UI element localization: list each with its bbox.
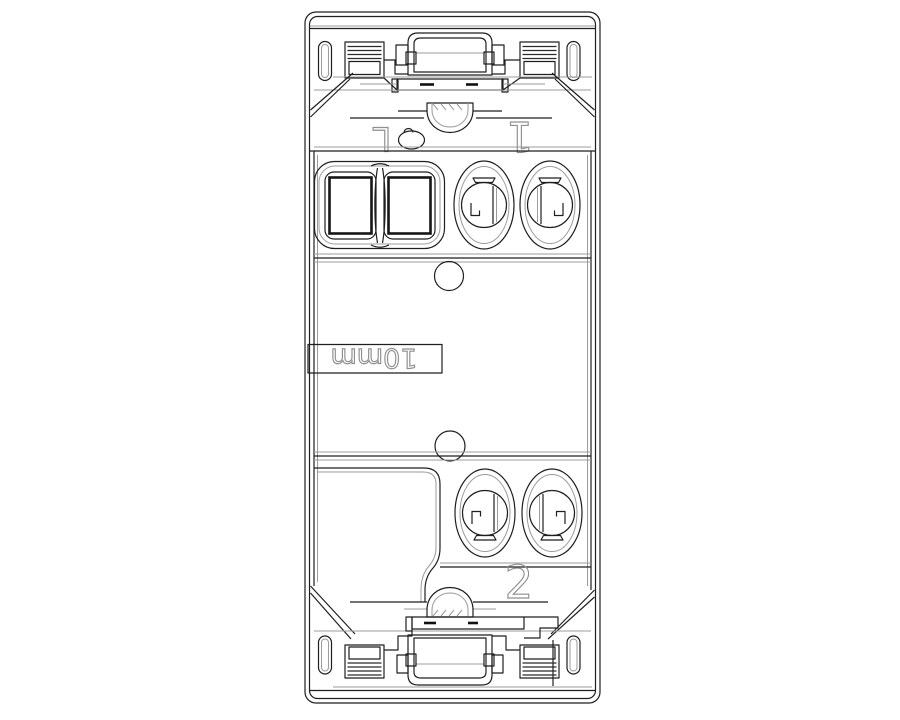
slot-inner	[322, 639, 329, 671]
pole-label-row-top: L 1	[310, 112, 596, 161]
edge-line	[457, 610, 462, 616]
technical-drawing-canvas: L 1	[0, 0, 900, 720]
clip-outline	[520, 42, 559, 78]
pull-knob-top	[427, 103, 473, 133]
clip-outline	[345, 42, 384, 78]
port-outline	[454, 161, 514, 249]
slot-outline	[319, 42, 332, 81]
guide-hole-top	[435, 262, 464, 291]
square-port-block	[315, 162, 445, 249]
contact-notch	[557, 512, 566, 525]
chamfer-line	[552, 73, 595, 110]
clip-inner	[524, 647, 555, 659]
port-opening	[463, 491, 508, 536]
chamfer-line	[311, 593, 352, 639]
cavity-wall-outer	[314, 468, 440, 602]
round-port-3	[455, 469, 515, 557]
knob-inner	[432, 103, 468, 127]
port-outline	[455, 469, 515, 557]
edge-line	[433, 610, 438, 616]
oval-outline	[399, 131, 425, 149]
slot-outline	[567, 42, 580, 81]
lower-cavity	[314, 468, 440, 602]
square-port-2-opening	[389, 178, 431, 234]
edge-line	[457, 104, 462, 110]
gauge-text: 10mm	[331, 342, 418, 373]
mid-body: 10mm	[308, 262, 591, 462]
square-port-1	[325, 172, 376, 239]
slot-outline	[567, 636, 580, 674]
tab-inner	[414, 38, 486, 72]
port-opening	[530, 491, 575, 536]
contact-notch	[472, 512, 481, 525]
pole-l-label: L	[372, 120, 391, 159]
edge-line	[449, 610, 454, 616]
terminal-row-1	[314, 161, 591, 262]
top-latch-frame	[311, 60, 595, 118]
contact-notch	[471, 203, 480, 216]
slot-inner	[570, 45, 577, 78]
mounting-slot-bottom-right	[567, 636, 580, 674]
slot-inner	[322, 45, 329, 78]
block-outline	[315, 162, 445, 249]
chamfer-line	[311, 586, 356, 634]
divider-cap	[371, 245, 389, 247]
bar-endcap	[406, 617, 412, 631]
cavity-wall-inner	[318, 472, 436, 602]
clip-inner	[349, 647, 380, 659]
round-port-4	[522, 469, 582, 557]
port-outline	[522, 469, 582, 557]
tab-outline	[408, 33, 492, 75]
round-port-1	[454, 161, 514, 249]
chamfer-line	[311, 73, 354, 110]
edge-line	[441, 104, 446, 110]
strip-gauge-label: 10mm	[308, 342, 442, 373]
step-bracket	[492, 636, 520, 650]
din-clip-top	[311, 33, 595, 133]
square-port-1-opening	[330, 178, 372, 234]
round-port-2	[520, 161, 580, 249]
edge-line	[449, 104, 454, 110]
slot-outline	[319, 636, 332, 674]
chamfer-line	[548, 597, 595, 639]
slot-inner	[570, 639, 577, 671]
contact-notch	[555, 203, 564, 216]
edge-line	[433, 104, 438, 110]
tab-inner	[414, 638, 486, 678]
contact-tab	[474, 536, 496, 541]
clip-inner	[524, 62, 555, 75]
clip-outline	[345, 645, 384, 678]
wiring-device-line-drawing: L 1	[0, 0, 900, 720]
contact-tab	[541, 536, 563, 541]
mounting-slot-top-right	[567, 42, 580, 81]
contact-tab	[539, 178, 561, 183]
mounting-slot-bottom-left	[319, 636, 332, 674]
spring-clip-top-left	[345, 42, 384, 78]
latch-bar-top	[314, 77, 592, 92]
chamfer-line	[311, 79, 351, 117]
pole-1-label: 1	[507, 112, 534, 161]
spring-clip-bottom-left	[345, 645, 384, 678]
step-bracket	[492, 60, 520, 74]
spring-clip-top-right	[520, 42, 559, 78]
bottom-latch-frame	[311, 586, 595, 650]
edge-line	[441, 610, 446, 616]
contact-tab	[473, 178, 495, 183]
clip-inner	[349, 62, 380, 75]
square-port-2	[384, 172, 435, 239]
port-opening	[528, 183, 573, 228]
mounting-slot-top-left	[319, 42, 332, 81]
latch-bar-bottom	[406, 617, 558, 686]
release-tab-top	[396, 33, 504, 75]
release-tab-bottom	[397, 635, 503, 685]
pole-2-label: 2	[505, 556, 534, 609]
bar-outline	[397, 79, 503, 90]
chamfer-line	[555, 79, 595, 117]
knob-inner	[432, 593, 468, 617]
port-opening	[462, 183, 507, 228]
din-clip-bottom	[311, 586, 595, 686]
pole-l-oval	[399, 129, 425, 150]
port-outline	[520, 161, 580, 249]
pull-knob-bottom	[427, 588, 473, 618]
